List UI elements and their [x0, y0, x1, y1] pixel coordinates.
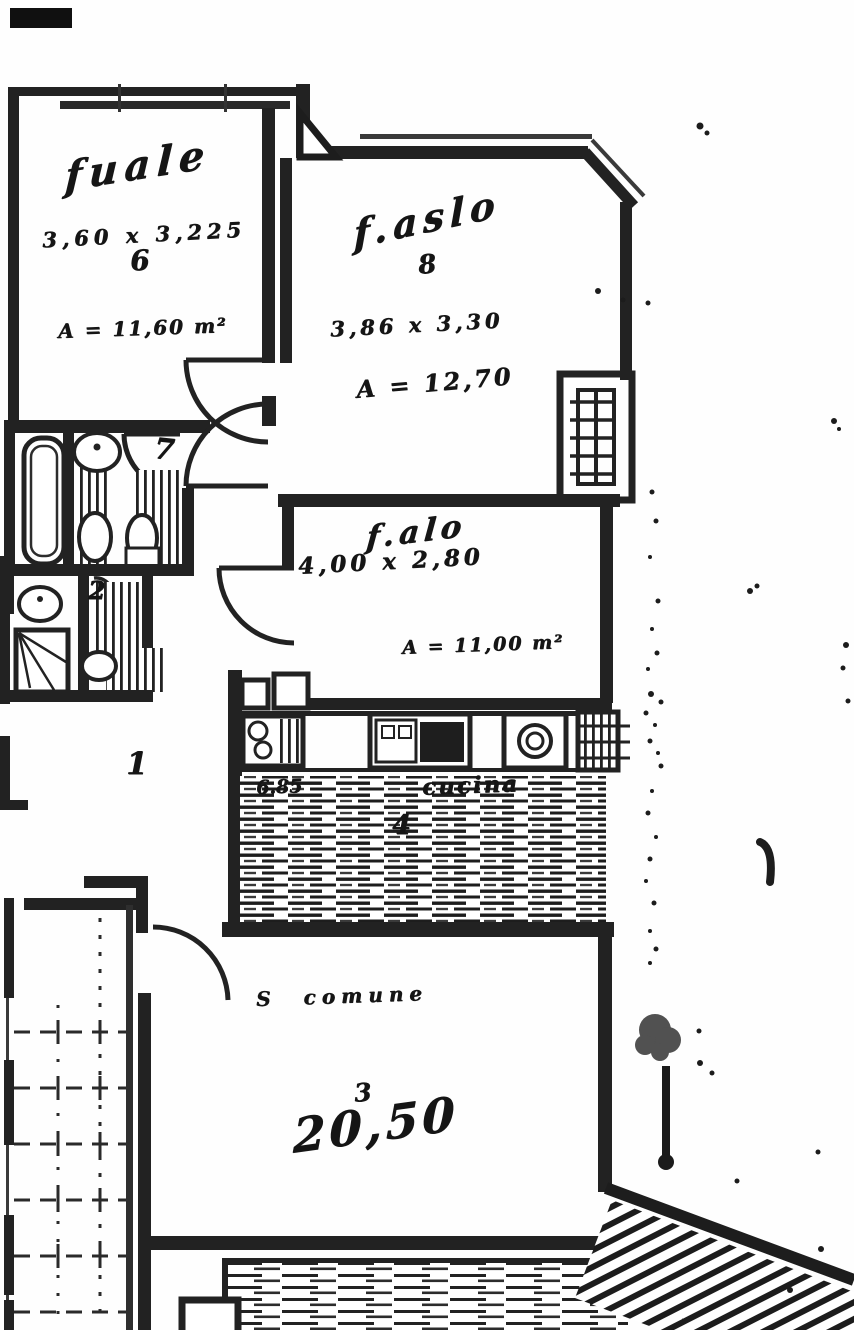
- balcony-left: [4, 898, 136, 1330]
- kitchen-dimension: 6.85: [256, 775, 303, 799]
- sink: [74, 433, 120, 471]
- terrace-diagonal: [575, 1188, 854, 1330]
- kitchen-label: cucina: [422, 770, 520, 800]
- stove-burner: [420, 722, 464, 762]
- bathroom-second-number: 2: [88, 576, 105, 605]
- door-triangle-marker: [300, 113, 336, 157]
- scan-specks: [595, 123, 851, 1294]
- door-arc: [219, 568, 294, 643]
- bathroom-main-number: 7: [152, 431, 176, 467]
- balcony-hatch: [228, 1263, 628, 1330]
- bathroom-second: [0, 572, 164, 704]
- sink: [19, 587, 61, 621]
- room2-number: 8: [416, 249, 437, 281]
- room-top-left-walls: [8, 84, 310, 433]
- ink-stem: [662, 1066, 670, 1162]
- scan-black-bar: [10, 8, 72, 28]
- radiator: [560, 374, 632, 500]
- door-arc: [186, 404, 268, 486]
- toilet: [82, 652, 116, 680]
- cabinet: [242, 680, 268, 708]
- floorplan-sheet: fuale 3,60 x 3,225 6 A = 11,60 m² f.aslo…: [0, 0, 854, 1330]
- ink-blob: [635, 1014, 681, 1061]
- toilet: [79, 513, 111, 561]
- kitchen-number: 4: [392, 810, 411, 841]
- tile-grid: [14, 918, 126, 1326]
- washing-machine: [504, 714, 566, 768]
- ink-comma: [760, 842, 771, 882]
- pillar-box: [182, 1300, 238, 1330]
- hall-number: 1: [126, 746, 148, 782]
- cabinet: [274, 674, 308, 708]
- balcony-bottom: [182, 1263, 628, 1330]
- door-arc: [153, 927, 228, 1000]
- room1-number: 6: [129, 243, 151, 277]
